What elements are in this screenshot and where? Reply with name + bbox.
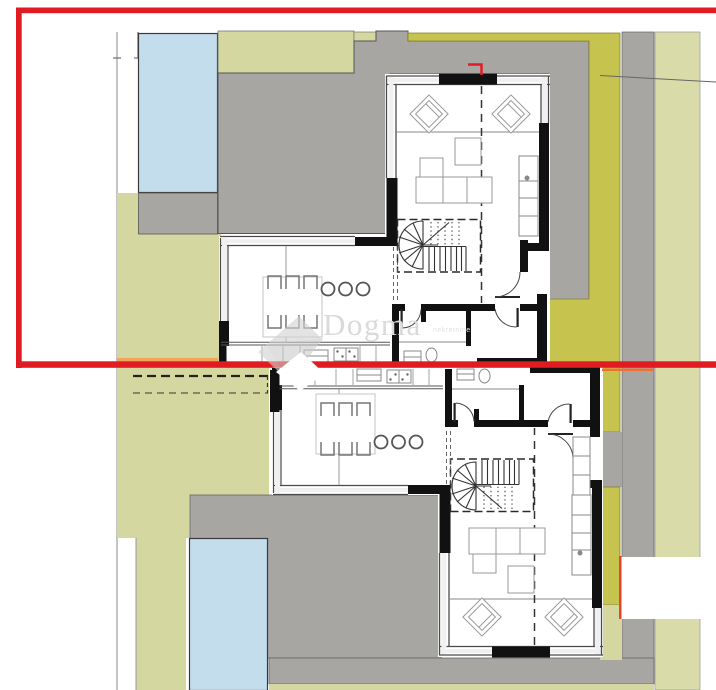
svg-text:Dogma: Dogma — [323, 307, 422, 342]
svg-text:nekretnine: nekretnine — [433, 327, 471, 334]
